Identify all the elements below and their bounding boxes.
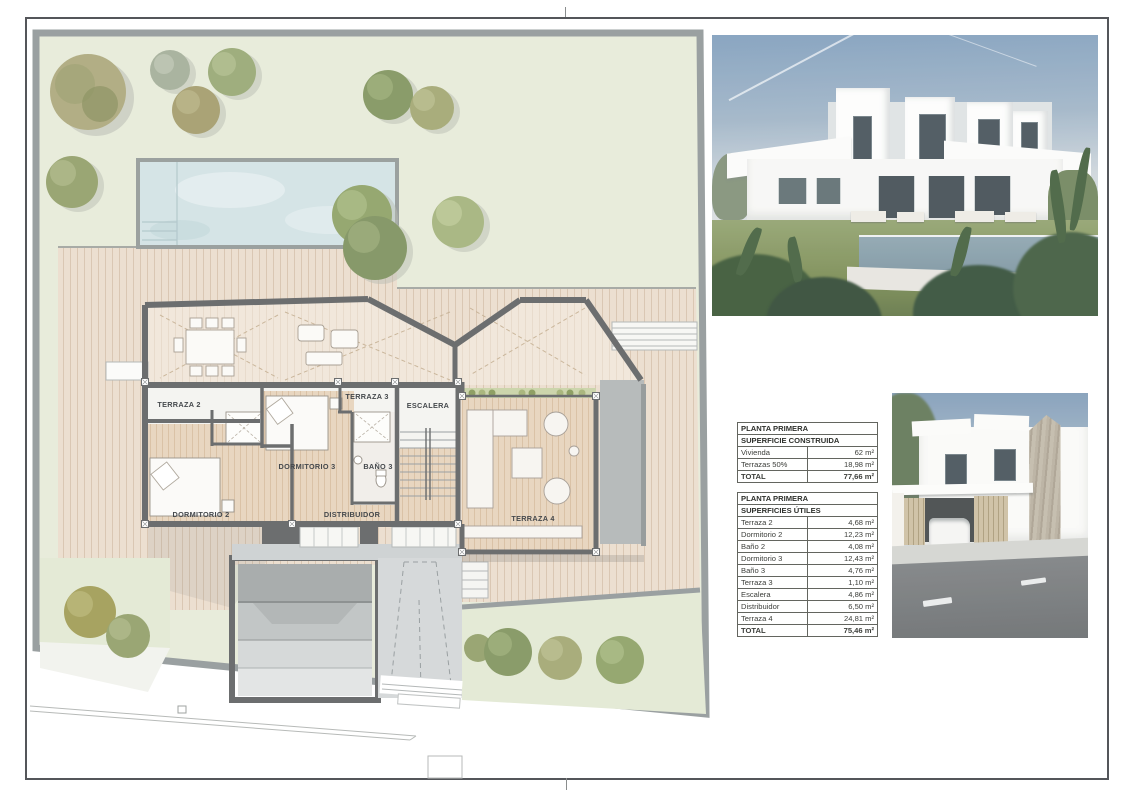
row-label: Terrazas 50% xyxy=(738,459,808,471)
row-label: Escalera xyxy=(738,589,808,601)
table-row: Escalera4,86 m² xyxy=(738,589,878,601)
exterior-stairs-garden xyxy=(612,322,697,350)
row-label: Distribuidor xyxy=(738,601,808,613)
surface-built-table: PLANTA PRIMERA SUPERFICIE CONSTRUIDA Viv… xyxy=(737,422,878,483)
row-label: TOTAL xyxy=(738,625,808,637)
row-value: 4,68 m² xyxy=(808,517,878,529)
row-value: 1,10 m² xyxy=(808,577,878,589)
table-total-row: TOTAL77,66 m² xyxy=(738,471,878,483)
side-gate xyxy=(106,362,148,380)
label-dormitorio-3: DORMITORIO 3 xyxy=(279,462,336,471)
row-value: 77,66 m² xyxy=(808,471,878,483)
row-value: 12,43 m² xyxy=(808,553,878,565)
table-row: Terraza 424,81 m² xyxy=(738,613,878,625)
row-label: Dormitorio 3 xyxy=(738,553,808,565)
table-row: Terraza 24,68 m² xyxy=(738,517,878,529)
render-exterior-pool xyxy=(712,35,1098,316)
shower-bano-2 xyxy=(226,412,262,444)
row-label: Dormitorio 2 xyxy=(738,529,808,541)
table-row: Distribuidor6,50 m² xyxy=(738,601,878,613)
street xyxy=(30,706,462,778)
photo-haze xyxy=(892,393,1088,638)
floor-plan: TERRAZA 2 TERRAZA 3 ESCALERA DORMITORIO … xyxy=(26,24,716,790)
row-label: Baño 2 xyxy=(738,541,808,553)
roof-overhang xyxy=(600,380,644,544)
table-row: Vivienda62 m² xyxy=(738,447,878,459)
registration-tick-top xyxy=(565,7,566,17)
row-value: 4,76 m² xyxy=(808,565,878,577)
table-title: PLANTA PRIMERA xyxy=(738,493,878,505)
render-exterior-street xyxy=(892,393,1088,638)
table-row: Terrazas 50%18,98 m² xyxy=(738,459,878,471)
row-value: 18,98 m² xyxy=(808,459,878,471)
row-value: 6,50 m² xyxy=(808,601,878,613)
table-row: Dormitorio 312,43 m² xyxy=(738,553,878,565)
row-value: 12,23 m² xyxy=(808,529,878,541)
row-value: 24,81 m² xyxy=(808,613,878,625)
garage xyxy=(232,558,378,700)
row-value: 75,46 m² xyxy=(808,625,878,637)
plan-sheet: TERRAZA 2 TERRAZA 3 ESCALERA DORMITORIO … xyxy=(0,0,1132,800)
label-bano-3: BAÑO 3 xyxy=(363,462,392,471)
exterior-steps-driveway xyxy=(462,562,488,598)
row-value: 4,08 m² xyxy=(808,541,878,553)
table-title: PLANTA PRIMERA xyxy=(738,423,878,435)
label-dormitorio-2: DORMITORIO 2 xyxy=(173,510,230,519)
row-label: Vivienda xyxy=(738,447,808,459)
table-row: Baño 24,08 m² xyxy=(738,541,878,553)
row-value: 4,86 m² xyxy=(808,589,878,601)
table-subtitle: SUPERFICIE CONSTRUIDA xyxy=(738,435,878,447)
label-terraza-4: TERRAZA 4 xyxy=(511,514,555,523)
row-label: Terraza 2 xyxy=(738,517,808,529)
table-total-row: TOTAL75,46 m² xyxy=(738,625,878,637)
row-label: Terraza 3 xyxy=(738,577,808,589)
row-label: Baño 3 xyxy=(738,565,808,577)
label-terraza-2: TERRAZA 2 xyxy=(157,400,200,409)
row-value: 62 m² xyxy=(808,447,878,459)
table-row: Terraza 31,10 m² xyxy=(738,577,878,589)
photo-haze xyxy=(712,35,1098,316)
usable-surfaces-table: PLANTA PRIMERA SUPERFICIES ÚTILES Terraz… xyxy=(737,492,878,637)
table-subtitle: SUPERFICIES ÚTILES xyxy=(738,505,878,517)
label-distribuidor: DISTRIBUIDOR xyxy=(324,510,381,519)
table-row: Dormitorio 212,23 m² xyxy=(738,529,878,541)
row-label: TOTAL xyxy=(738,471,808,483)
label-terraza-3: TERRAZA 3 xyxy=(345,392,388,401)
row-label: Terraza 4 xyxy=(738,613,808,625)
table-row: Baño 34,76 m² xyxy=(738,565,878,577)
label-escalera: ESCALERA xyxy=(407,401,450,410)
